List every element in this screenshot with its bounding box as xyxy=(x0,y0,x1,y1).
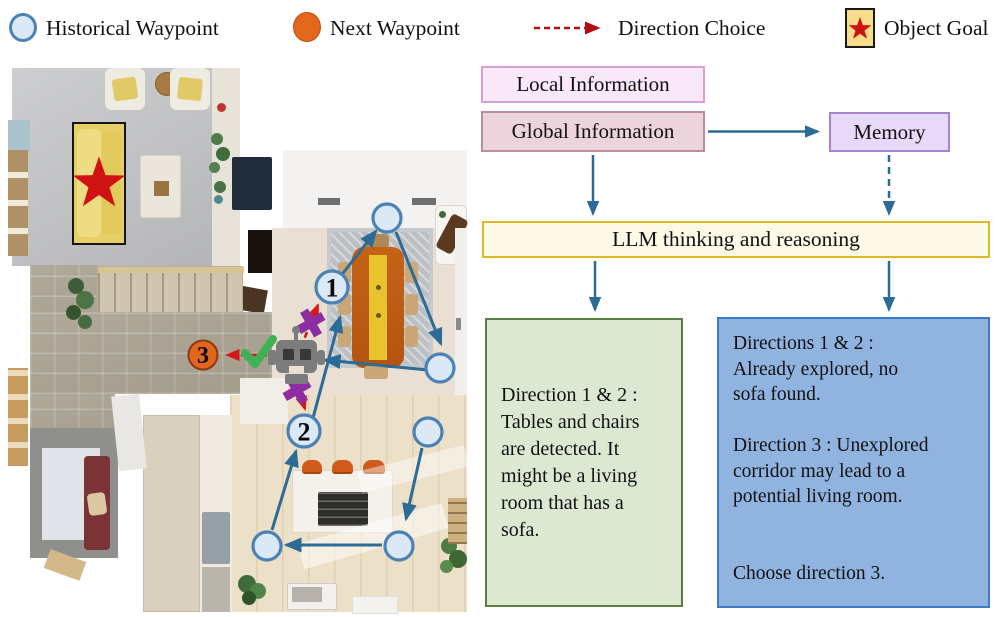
couch-pillow xyxy=(87,492,108,516)
counter-decor-red xyxy=(217,103,226,112)
armchair-cushion xyxy=(177,77,203,101)
global-information-label: Global Information xyxy=(512,119,675,144)
kitchen-appliance xyxy=(202,512,230,564)
coffee-table xyxy=(140,155,181,218)
direction-choice-arrow-icon xyxy=(532,20,614,36)
legend-goal-label: Object Goal xyxy=(884,13,988,43)
window-seat xyxy=(8,120,30,152)
wall-handle xyxy=(456,318,461,330)
legend-historical-label: Historical Waypoint xyxy=(46,13,219,43)
floorplan-map xyxy=(8,63,468,617)
white-box xyxy=(352,596,398,614)
counter-plant xyxy=(216,147,230,161)
counter-plant xyxy=(214,181,226,193)
dining-chair xyxy=(365,234,389,248)
dining-right-wall xyxy=(455,228,467,395)
kitchen-cabinet xyxy=(240,378,288,424)
sofa-cushion xyxy=(77,129,101,237)
historical-waypoint-icon xyxy=(9,13,37,42)
stove xyxy=(318,492,368,526)
object-goal-icon xyxy=(845,8,875,48)
armchair-right xyxy=(170,68,210,110)
kitchen-counter xyxy=(143,415,200,612)
local-information-box: Local Information xyxy=(481,66,705,103)
corner-plant xyxy=(439,211,446,218)
dining-chair xyxy=(338,326,351,347)
kitchen-appliance xyxy=(202,567,230,612)
next-waypoint-icon xyxy=(293,12,321,42)
memory-label: Memory xyxy=(853,120,925,145)
local-information-label: Local Information xyxy=(516,72,669,97)
coffee-table-tray xyxy=(154,181,169,196)
llm-reasoning-box: LLM thinking and reasoning xyxy=(482,221,990,258)
counter-plant xyxy=(209,162,220,173)
goal-sofa xyxy=(72,122,126,245)
armchair-left xyxy=(105,68,145,110)
dark-appliance xyxy=(232,157,272,210)
memory-box: Memory xyxy=(829,112,950,152)
small-table xyxy=(287,583,337,610)
wall-vent xyxy=(412,198,436,205)
dining-chair xyxy=(405,262,418,283)
dining-chair xyxy=(338,294,351,315)
dining-chair xyxy=(364,366,388,379)
dining-chair xyxy=(338,262,351,283)
observation-text-box: Direction 1 & 2 : Tables and chairs are … xyxy=(485,318,683,607)
dining-chair xyxy=(405,326,418,347)
observation-text: Direction 1 & 2 : Tables and chairs are … xyxy=(501,382,640,544)
global-information-box: Global Information xyxy=(481,111,705,152)
llm-reasoning-label: LLM thinking and reasoning xyxy=(612,227,860,252)
stair-rail xyxy=(98,267,244,273)
shelf-strip xyxy=(8,150,28,256)
reasoning-text-box: Directions 1 & 2 : Already explored, no … xyxy=(717,317,990,608)
table-runner xyxy=(369,255,387,360)
legend: Historical Waypoint Next Waypoint Direct… xyxy=(0,0,997,55)
armchair-cushion xyxy=(112,76,139,101)
shelf-ladder xyxy=(448,498,467,544)
runner-dot xyxy=(376,285,381,290)
runner-dot xyxy=(376,313,381,318)
legend-next-label: Next Waypoint xyxy=(330,13,460,43)
small-table-top xyxy=(292,587,322,602)
counter-plant xyxy=(211,133,223,145)
floor-plant xyxy=(242,591,256,605)
wall-vent xyxy=(318,198,340,205)
staircase xyxy=(97,266,243,313)
floor-plant xyxy=(440,560,453,573)
legend-direction-label: Direction Choice xyxy=(618,13,765,43)
reasoning-text: Directions 1 & 2 : Already explored, no … xyxy=(733,331,929,586)
stair-plant xyxy=(78,315,92,329)
sofa-cushion xyxy=(102,132,121,234)
bar-stool xyxy=(302,460,322,474)
shelf-strip xyxy=(8,368,28,466)
counter-decor-teal xyxy=(214,195,223,204)
dining-chair xyxy=(405,294,418,315)
bar-stool xyxy=(332,460,353,474)
